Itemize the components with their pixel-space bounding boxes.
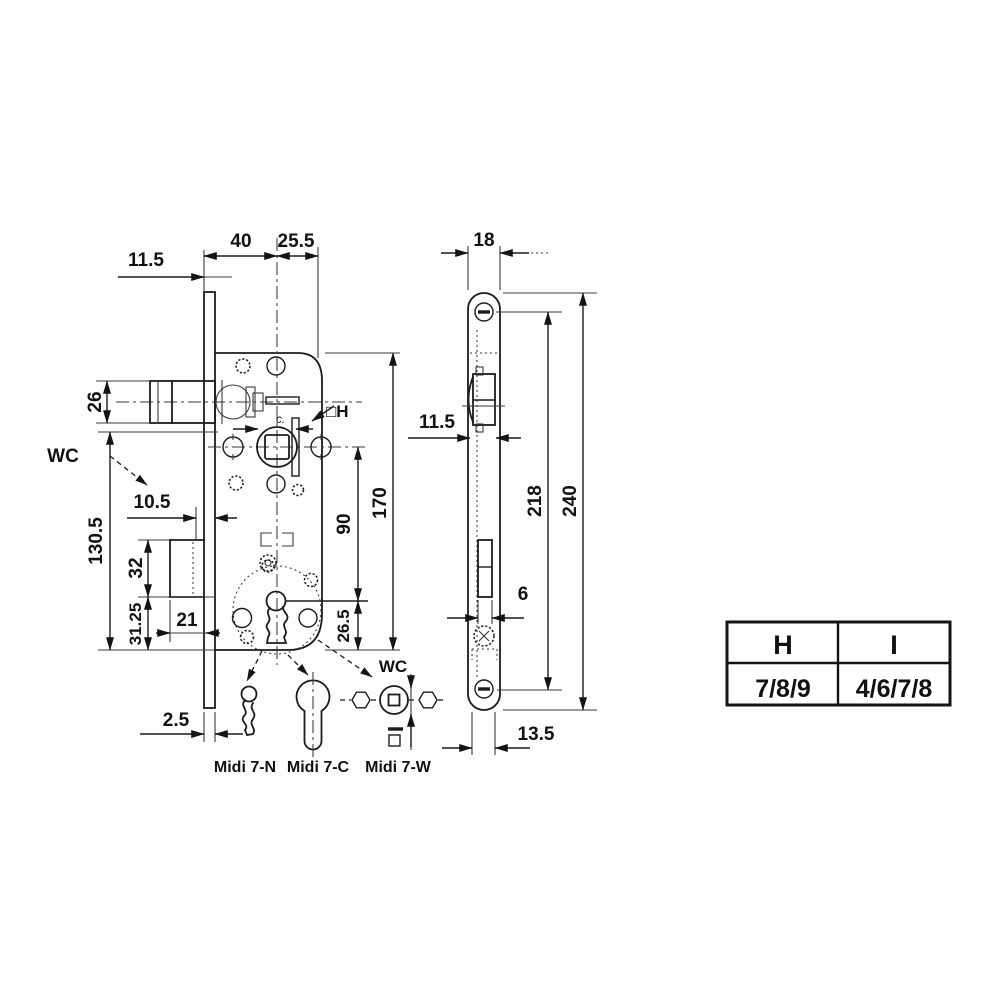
dim-170: 170 [370,487,391,519]
variant-label-w: Midi 7-W [365,759,432,776]
dim-90: 90 [334,513,355,534]
spindle-size-label: □H [326,402,349,421]
dim-18: 18 [473,230,494,251]
wc-leader [110,456,147,485]
dim-26-5: 26.5 [334,609,353,642]
leader-midi7c [288,655,308,675]
midi7w-spindle [340,674,447,750]
variant-label-n: Midi 7-N [214,759,276,776]
front-view: □H c. [47,231,407,742]
size-square [389,735,400,746]
screw-hole-serrated-top [236,359,250,373]
dim-130-5: 130.5 [86,517,107,565]
side-dimensions: 18 11.5 218 240 6 13.5 [408,230,597,755]
table-value-h: 7/8/9 [755,675,811,703]
hex-nut-right [419,692,437,708]
dim-32: 32 [126,557,147,578]
key-side-hole-right [299,609,317,627]
fixing-hole-mid [267,475,285,493]
dim-31-25: 31.25 [126,603,145,646]
spec-table: H I 7/8/9 4/6/7/8 [727,622,950,705]
deadbolt-side-profile [478,540,492,597]
dim-240: 240 [560,485,581,517]
dim-10-5: 10.5 [134,492,171,513]
technical-drawing: □H c. [0,0,1000,1000]
variant-keyholes: Midi 7-N Midi 7-C Midi 7-W [214,640,447,776]
detail-label: c. [276,414,285,426]
adjust-slot [266,397,299,404]
dim-6: 6 [518,584,529,605]
table-header-i: I [890,630,898,660]
faceplate-side [468,293,500,710]
wc-label-bottom: WC [379,657,407,676]
dim-21: 21 [176,610,198,631]
midi7n-keyhole [242,687,257,736]
lock-dimension-drawing-page: □H c. [0,0,1000,1000]
screw-hole-serrated-mid [229,476,243,490]
dim-218: 218 [525,485,546,517]
small-serrated-hole [293,485,304,496]
dim-side-11-5: 11.5 [419,412,455,433]
spindle-square [389,695,400,706]
wc-label-left: WC [47,446,79,467]
fixing-hole-top [267,357,285,375]
spindle-ring [380,686,408,714]
leader-midi7n [247,651,262,681]
front-dimensions-top: 11.5 40 25.5 [118,231,318,358]
side-view: 18 11.5 218 240 6 13.5 [408,230,597,755]
front-dimensions-left: 26 130.5 32 31.25 21 10.5 [47,381,243,742]
deadbolt-front [170,540,204,597]
leader-midi7w [318,640,372,677]
key-side-hole-left [233,609,252,628]
dim-13-5: 13.5 [518,724,555,745]
faceplate-front [204,292,215,708]
dim-2-5: 2.5 [163,710,190,731]
dim-top-11-5: 11.5 [128,250,164,271]
table-value-i: 4/6/7/8 [856,675,933,703]
midi7c-cylinder [297,672,330,762]
dim-25-5: 25.5 [278,231,315,252]
variant-label-c: Midi 7-C [287,759,350,776]
hex-nut-left [352,692,370,708]
table-header-h: H [773,630,793,660]
front-dimensions-right: 90 26.5 170 [325,353,400,650]
dim-40: 40 [230,231,251,252]
dim-26: 26 [85,391,106,412]
